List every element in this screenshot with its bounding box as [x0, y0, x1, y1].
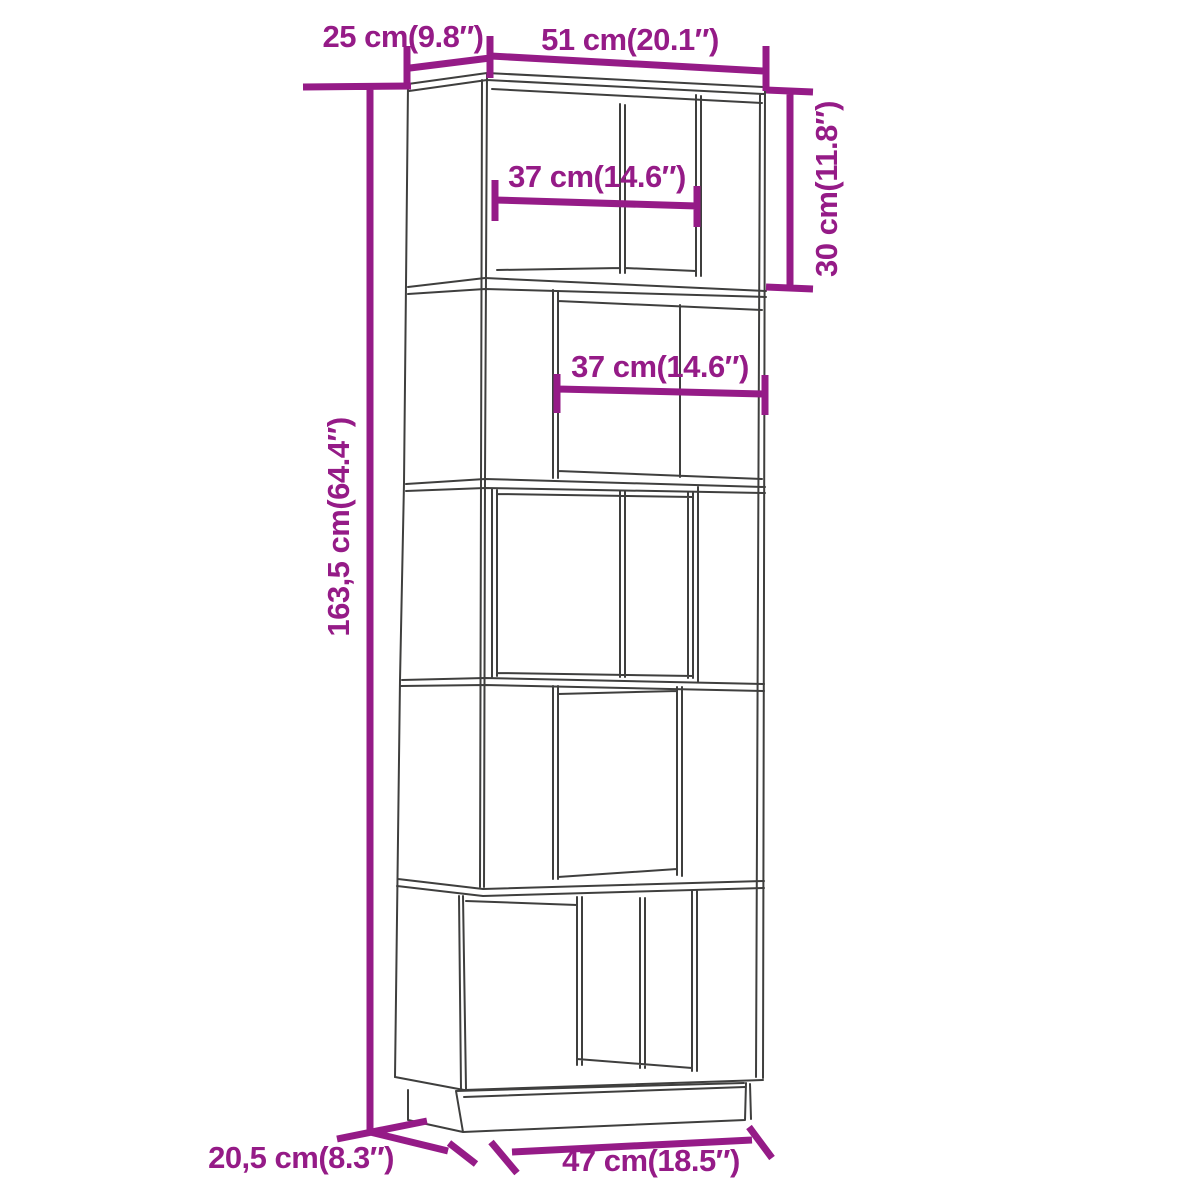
dimension-label-total-height: 163,5 cm(64.4″): [321, 417, 356, 636]
dimension-line-total-height: [303, 86, 411, 1132]
dimension-base-depth: 20,5 cm(8.3″): [208, 1121, 476, 1175]
bookcase-line-drawing: [395, 73, 766, 1132]
dimension-base-width: 47 cm(18.5″): [491, 1127, 772, 1178]
plinth-base: [408, 1083, 751, 1132]
dimension-label-top-width: 51 cm(20.1″): [541, 22, 719, 57]
dimension-label-top-inner-width: 37 cm(14.6″): [508, 159, 686, 194]
dimension-label-base-depth: 20,5 cm(8.3″): [208, 1140, 394, 1175]
cabinet-outline: [395, 73, 765, 1089]
dimension-total-height: 163,5 cm(64.4″): [303, 86, 411, 1132]
compartment-partitions: [466, 95, 762, 1071]
dimension-line-top-section-height: [766, 90, 813, 289]
dimension-label-base-width: 47 cm(18.5″): [562, 1143, 740, 1178]
dimension-middle-inner-width: 37 cm(14.6″): [557, 349, 765, 415]
dimension-label-top-section-height: 30 cm(11.8″): [809, 101, 844, 277]
bookcase-dimension-diagram: 25 cm(9.8″) 51 cm(20.1″) 37 cm(14.6″) 30…: [0, 0, 1200, 1200]
diagram-canvas: 25 cm(9.8″) 51 cm(20.1″) 37 cm(14.6″) 30…: [0, 0, 1200, 1200]
dimension-label-top-depth: 25 cm(9.8″): [323, 19, 484, 54]
shelf-bands: [395, 278, 766, 1097]
dimension-top-section-height: 30 cm(11.8″): [766, 90, 844, 289]
dimension-top-inner-width: 37 cm(14.6″): [495, 159, 697, 227]
dimension-label-middle-inner-width: 37 cm(14.6″): [571, 349, 749, 384]
